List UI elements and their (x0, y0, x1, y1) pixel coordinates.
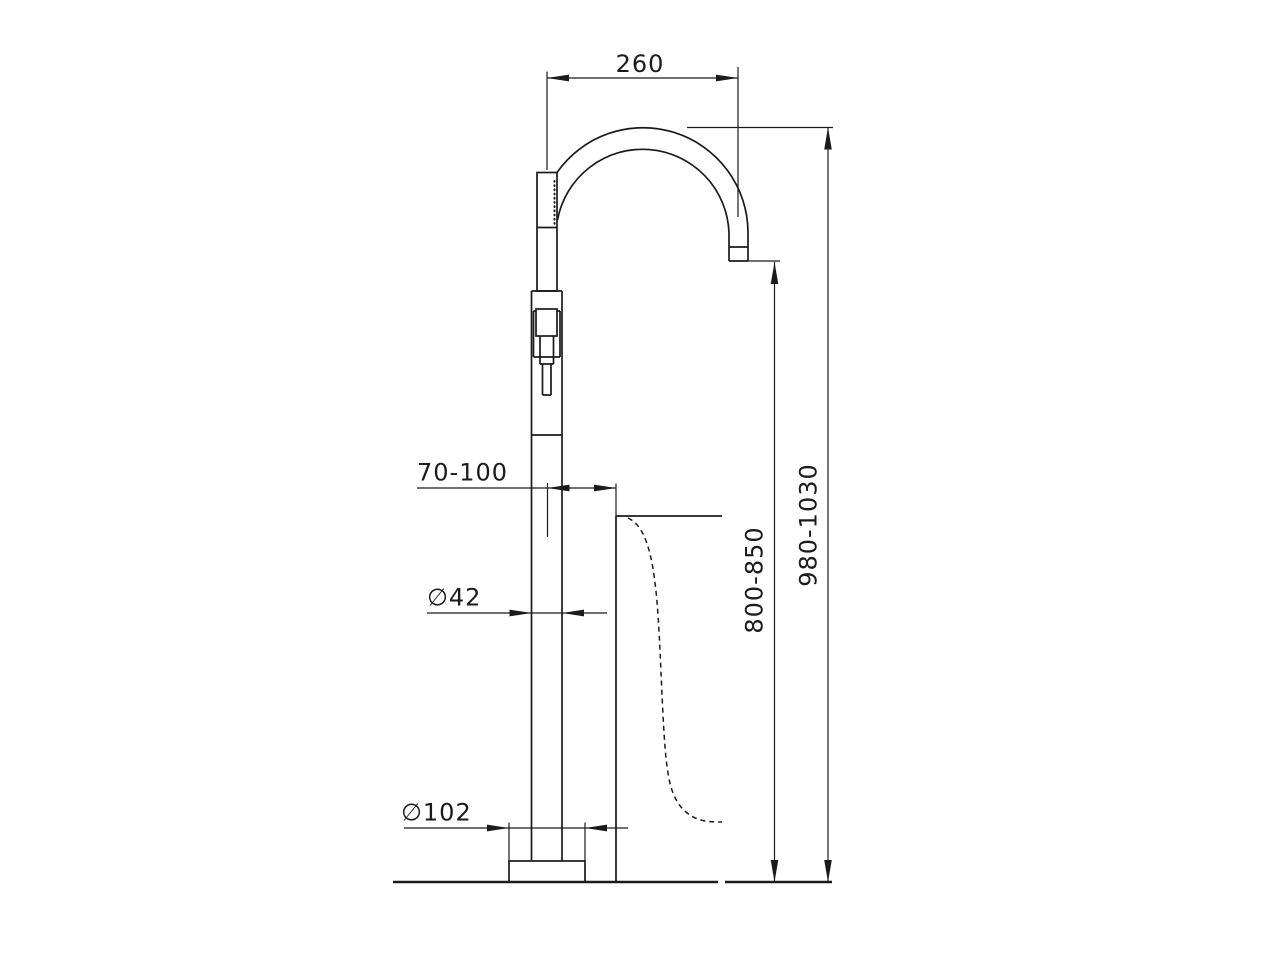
dim-d42-arrow-right (562, 610, 584, 617)
dim-260-arrow-left (547, 75, 569, 82)
dim-800-850-label: 800-850 (741, 526, 769, 633)
dimension-spout-outlet-height: 800-850 (741, 261, 781, 882)
dim-70-100-label: 70-100 (417, 459, 508, 487)
drawing-sheet: 260 70-100 ∅42 ∅102 (0, 0, 1280, 960)
mixer-handle (534, 309, 561, 395)
base-plate (509, 861, 585, 882)
handle-stem (540, 336, 554, 364)
dim-800-850-arrow-up (771, 262, 779, 284)
dim-d102-label: ∅102 (401, 799, 472, 827)
technical-drawing: 260 70-100 ∅42 ∅102 (0, 0, 1280, 960)
dim-980-1030-label: 980-1030 (795, 463, 823, 587)
riser-column (532, 291, 563, 861)
faucet-outline (509, 128, 748, 882)
dim-d42-label: ∅42 (427, 584, 481, 612)
dimension-overall-height: 980-1030 (687, 128, 833, 883)
handle-collar (534, 311, 561, 357)
dimension-base-diameter: ∅102 (401, 799, 628, 862)
dim-d42-arrow-left (510, 610, 532, 617)
dimension-centre-to-tub-rim: 70-100 (417, 459, 616, 538)
dimension-spout-reach: 260 (547, 50, 738, 217)
handle-knob (536, 309, 557, 336)
dim-d102-arrow-right (585, 825, 607, 832)
spout-inner-curve (558, 149, 730, 261)
dim-70-100-arrow-left (548, 485, 570, 492)
dim-980-1030-arrow-down (824, 860, 832, 882)
handle-stem-lower (543, 364, 552, 395)
bathtub (616, 516, 722, 882)
dim-d102-arrow-left (487, 825, 509, 832)
dim-800-850-arrow-down (771, 860, 779, 882)
dimension-column-diameter: ∅42 (427, 584, 607, 617)
dim-70-100-arrow-right (594, 485, 616, 492)
dim-260-label: 260 (616, 50, 665, 78)
dim-260-arrow-right (716, 75, 738, 82)
bathtub-inner-profile-dashed (628, 518, 722, 822)
dim-980-1030-arrow-up (824, 128, 832, 150)
